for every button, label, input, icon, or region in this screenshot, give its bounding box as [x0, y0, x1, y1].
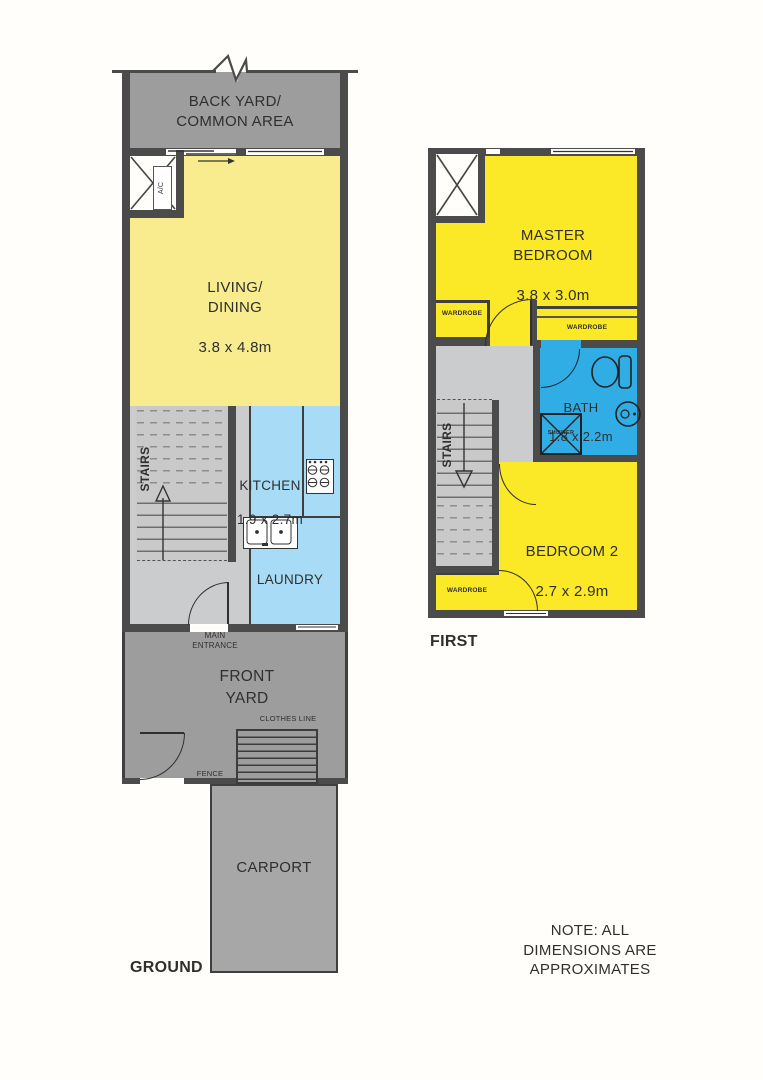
living-dining-dims: 3.8 x 4.8m — [155, 338, 315, 358]
bedroom2-label: BEDROOM 2 2.7 x 2.9m — [512, 522, 632, 622]
main-entrance-label: MAIN ENTRANCE — [180, 631, 250, 651]
window-master-small — [486, 149, 500, 154]
carport-label: CARPORT — [214, 858, 334, 878]
wall-master-landing — [428, 337, 490, 346]
wardrobe-bottom-top-line — [436, 573, 499, 575]
stair-cut-line-first — [437, 399, 492, 400]
kitchen-label: KITCHEN 1.9 x 2.7m — [228, 460, 312, 545]
stair-treads-dashed-first — [437, 505, 492, 565]
stairs-ground-label: STAIRS — [138, 429, 152, 509]
main-entrance-door-leaf — [227, 582, 229, 624]
master-bedroom-name: MASTER BEDROOM — [483, 226, 623, 266]
wall-stairs-first-bottom — [436, 566, 499, 573]
bath-label: BATH 1.8 x 2.2m — [538, 386, 624, 459]
wardrobe-right-label: WARDROBE — [537, 324, 637, 332]
fence-label: FENCE — [185, 769, 235, 779]
wall-first-right — [637, 148, 645, 618]
floorplan-page: BACK YARD/ COMMON AREA A/C LIVING/ DININ… — [0, 0, 763, 1080]
shower-label: SHOWER — [541, 430, 581, 437]
ac-label: A/C — [155, 166, 169, 210]
note-text: NOTE: ALL DIMENSIONS ARE APPROXIMATES — [490, 921, 690, 980]
master-bedroom-label: MASTER BEDROOM 3.8 x 3.0m — [483, 206, 623, 326]
laundry-label: LAUNDRY — [248, 570, 332, 590]
void-box — [436, 154, 478, 216]
bath-door-opening — [541, 340, 581, 348]
carport-area — [210, 784, 338, 973]
window-living — [246, 149, 324, 155]
window-master — [551, 149, 635, 154]
wardrobe-bottom-label: WARDROBE — [437, 587, 497, 595]
front-yard-border-left — [122, 632, 125, 778]
clothes-line-label: CLOTHES LINE — [248, 714, 328, 724]
floorplan-linework — [0, 0, 763, 1080]
front-yard-border-right — [345, 632, 348, 778]
living-dining-name: LIVING/ DINING — [155, 278, 315, 318]
front-yard-label: FRONT YARD — [197, 666, 297, 710]
clothes-line-icon — [236, 729, 318, 784]
wardrobe-left-top-line — [436, 300, 490, 303]
wardrobe-left-label: WARDROBE — [438, 310, 486, 318]
stairs-first-label: STAIRS — [440, 405, 454, 485]
window-laundry — [296, 625, 338, 630]
kitchen-name: KITCHEN — [228, 477, 312, 494]
ground-floor-label: GROUND — [130, 958, 240, 978]
bath-name: BATH — [538, 401, 624, 416]
first-floor-label: FIRST — [430, 632, 530, 652]
master-bedroom-dims: 3.8 x 3.0m — [483, 286, 623, 306]
ac-wall-right — [176, 150, 184, 218]
bedroom2-name: BEDROOM 2 — [512, 542, 632, 562]
kitchen-dims: 1.9 x 2.7m — [228, 511, 312, 528]
void-wall-bottom — [430, 216, 485, 223]
stair-cut-line-ground — [137, 560, 227, 561]
fence-segment-left — [122, 778, 140, 784]
bedroom2-dims: 2.7 x 2.9m — [512, 582, 632, 602]
living-dining-label: LIVING/ DINING 3.8 x 4.8m — [155, 258, 315, 378]
backyard-label: BACK YARD/ COMMON AREA — [145, 92, 325, 132]
ac-wall-bottom — [130, 210, 184, 218]
gate-door-leaf — [140, 732, 184, 734]
